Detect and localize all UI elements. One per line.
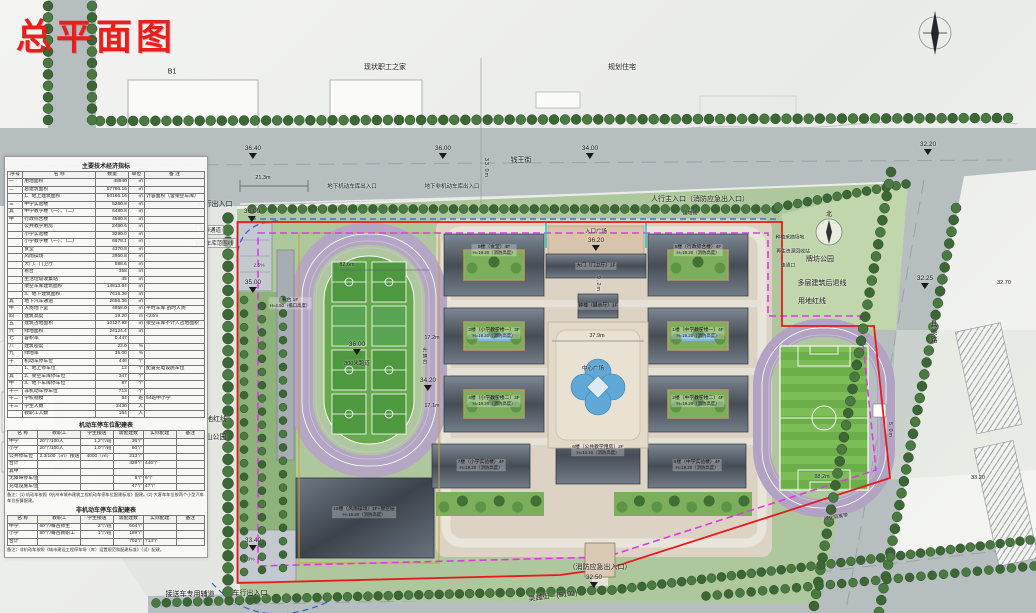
motor-table-title: 机动车停车位配建表 [7, 420, 205, 429]
staff-home-label: 现状职工之家 [364, 62, 406, 72]
middle-teaching-1-label: 1楼（中学教学楼一）4FH=19.20（消防高度） [671, 327, 724, 339]
level-33-40: 33.40 [245, 538, 261, 555]
dim-37-9: 37.9m [589, 333, 604, 339]
level-36-00-road: 36.00 [435, 146, 451, 163]
gym-label: 10楼（风雨操场）1F+架空层H=19.20（消防高度） [332, 506, 396, 518]
master-plan-canvas: 北 总平面图 主要技术经济指标 序号名 称数量单位备 注一用地面积48940㎡二… [0, 0, 1036, 613]
slope-2-0: 2.0% [244, 558, 255, 563]
connect-port-label: 连通口 [781, 262, 795, 269]
public-teaching-label: 6楼（公共教学用房）2FH=13.10（消防高度） [571, 444, 624, 456]
underground-nonmotor-entry-label: 地下非机动车库出入口 [424, 182, 479, 190]
dim-9-2: 9.2m [595, 276, 601, 292]
motor-table-note: 备注：(1) 机动车按照《杭州市城市建筑工程机动车停车位配建标准》配建。(2) … [7, 492, 205, 503]
parcel-b1-label: B1 [168, 69, 177, 76]
dim-21-3: 21.3m [255, 175, 270, 181]
slope-2-5: 2.5% [254, 264, 265, 269]
setback-line-east-label: 多层建筑后退线 [798, 278, 847, 288]
north-arrow [919, 11, 951, 55]
dim-17-1: 17.1m [424, 403, 439, 409]
level-32-70: 32.70 [997, 280, 1011, 286]
dim-5-0: 5.0m [887, 422, 893, 438]
svg-text:北: 北 [826, 210, 832, 218]
dim-82-6: 82.6m [339, 262, 354, 268]
dim-88-2: 88.2m [814, 474, 829, 480]
pedestrian-main-entry-label: 人行主入口（消防应急出入口） [651, 194, 749, 204]
level-35-00: 35.00 [245, 280, 261, 297]
level-32-50: 32.50 [586, 575, 602, 592]
main-indicators-table: 序号名 称数量单位备 注一用地面积48940㎡二总建筑面积57786.16㎡1、… [7, 171, 205, 418]
gym-building [296, 478, 434, 558]
level-34-20: 34.20 [420, 378, 436, 395]
admin-label: 5楼（行政综合楼）4FH=19.20（消防高度） [674, 244, 723, 256]
football-field [762, 328, 886, 508]
planned-residence-label: 规划住宅 [608, 62, 636, 72]
paifang-park-label: 牌坊公园 [806, 254, 834, 264]
nonmotor-table-note: 备注：非机动车按照《城市建设工程停车场（库）设置规范和配建标准》（试）配建。 [7, 547, 205, 552]
red-line-east-label: 用地红线 [798, 296, 826, 306]
shuttle-lane-label: 接送车专用辅道 [166, 589, 215, 599]
primary-lab-label: 7楼（小学实验楼）4FH=19.20（消防高度） [457, 459, 506, 471]
level-36-40: 36.40 [245, 146, 261, 163]
fire-exit-south-label: （消防应急出入口） [569, 562, 632, 572]
road-east-label: 具美路 [928, 320, 938, 344]
underground-motor-entry-label: 地下机动车库出入口 [327, 182, 377, 190]
road-north-label: 钱王街 [511, 155, 532, 165]
entry-plaza-label: 入口广场 [585, 227, 607, 235]
technical-indicators-panel: 主要技术经济指标 序号名 称数量单位备 注一用地面积48940㎡二总建筑面积57… [4, 156, 208, 558]
canteen-label: 9楼（食堂）4FH=19.20（消防高度） [471, 244, 516, 256]
level-32-20: 32.20 [920, 142, 936, 159]
primary-teaching-2-label: 4楼（小学教学楼二）3FH=19.20（消防高度） [467, 395, 520, 407]
dim-33-0: 33.0m [483, 158, 489, 178]
motor-parking-table: 名 称教职工学生接送需配建数实际配建备注中学20个/100人1.2个/班36个小… [7, 430, 205, 491]
level-36-00-entry: 36.00 [244, 209, 260, 226]
grandstand-label: 看台 1FH=4.50（檐口高度） [269, 297, 312, 309]
level-32-25: 32.25 [917, 276, 933, 293]
level-34-00: 34.00 [582, 146, 598, 163]
track-300-label: 300米跑道 [344, 359, 370, 367]
middle-lab-label: 8楼（中学实验楼）4FH=19.20（消防高度） [673, 459, 722, 471]
bell-tower-label: 钟楼（展示厅）1F [577, 303, 618, 310]
main-table-title: 主要技术经济指标 [7, 161, 205, 170]
vehicle-exit-south-label: 车行出入口 [233, 588, 268, 598]
gate-label: 大门（门卫厅）1F [575, 263, 616, 270]
level-36-00-track: 36.00 [349, 342, 365, 359]
planting-area-label: 种植采摘场地 [776, 234, 805, 241]
level-36-20: 36.20 [588, 238, 604, 255]
recycle-station-label: 再生资源回收站 [776, 248, 810, 255]
drawing-title: 总平面图 [16, 8, 176, 60]
central-plaza-label: 中心广场 [582, 364, 604, 372]
wall-line-label: 围墙线 [683, 210, 697, 217]
level-33-20: 33.20 [971, 475, 985, 481]
nonmotor-parking-table: 名 称教职工学生接送需配建数实际配建备注中学60个/每百师生2个/班504个小学… [7, 515, 205, 546]
dim-17-2: 17.2m [424, 335, 439, 341]
nonmotor-table-title: 非机动车停车位配建表 [7, 505, 205, 514]
flag-platform-label: 升旗台 [421, 347, 428, 364]
primary-teaching-1-label: 3楼（小学教学楼一）3FH=19.20（消防高度） [467, 327, 520, 339]
middle-teaching-2-label: 2楼（中学教学楼二）4FH=19.20（消防高度） [671, 395, 724, 407]
